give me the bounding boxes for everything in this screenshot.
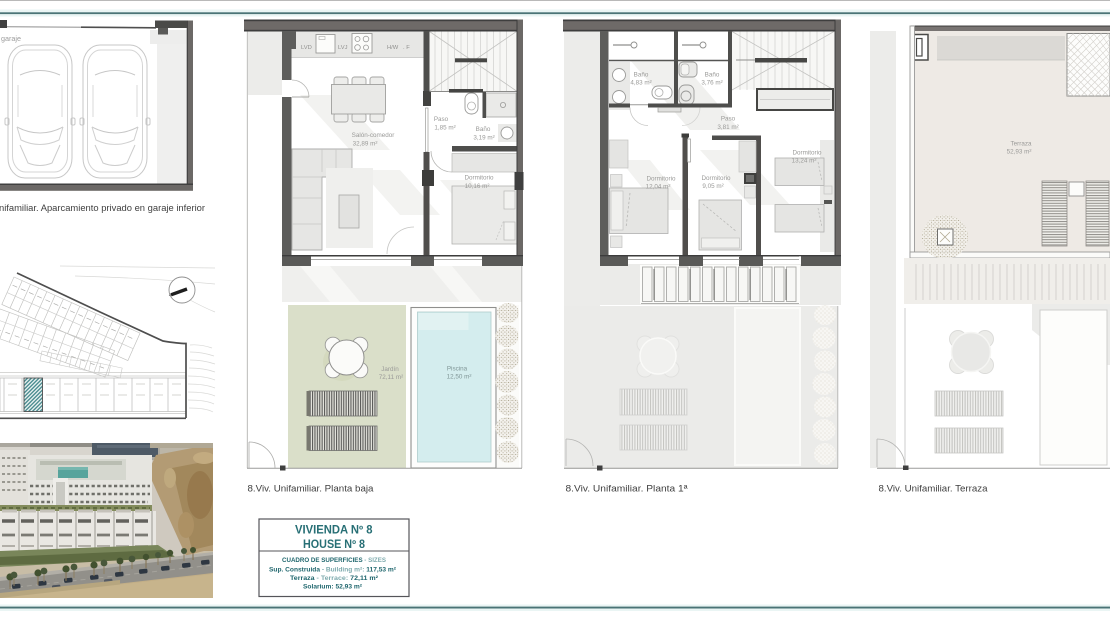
svg-text:3,19 m²: 3,19 m² bbox=[473, 135, 494, 142]
svg-text:Paso: Paso bbox=[434, 116, 449, 123]
svg-text:Dormitorio: Dormitorio bbox=[646, 176, 676, 183]
svg-text:LVD: LVD bbox=[301, 45, 312, 51]
svg-text:3,76 m²: 3,76 m² bbox=[701, 80, 722, 87]
svg-text:9,05 m²: 9,05 m² bbox=[702, 183, 723, 190]
svg-text:8.Viv. Unifamiliar. Planta 1ª: 8.Viv. Unifamiliar. Planta 1ª bbox=[566, 484, 688, 495]
svg-text:VIVIENDA Nº 8: VIVIENDA Nº 8 bbox=[295, 525, 373, 537]
svg-text:Salón-comedor: Salón-comedor bbox=[352, 132, 395, 139]
svg-text:CUADRO DE SUPERFICIES - SIZES: CUADRO DE SUPERFICIES - SIZES bbox=[282, 557, 387, 564]
svg-text:10,16 m²: 10,16 m² bbox=[465, 183, 490, 190]
svg-text:Piscina: Piscina bbox=[447, 366, 468, 373]
svg-text:8.Viv. Unifamiliar. Planta baj: 8.Viv. Unifamiliar. Planta baja bbox=[248, 484, 375, 495]
svg-text:52,93 m²: 52,93 m² bbox=[1007, 149, 1032, 156]
svg-text:garaje: garaje bbox=[1, 34, 21, 43]
svg-text:. F: . F bbox=[403, 45, 410, 51]
svg-text:LVJ: LVJ bbox=[338, 45, 348, 51]
svg-text:Paso: Paso bbox=[721, 116, 736, 123]
svg-text:Terraza - Terrace: 72,11 m²: Terraza - Terrace: 72,11 m² bbox=[290, 575, 379, 582]
svg-text:Solarium: 52,93 m²: Solarium: 52,93 m² bbox=[303, 584, 363, 591]
svg-text:12,04 m²: 12,04 m² bbox=[646, 184, 671, 191]
svg-text:Jardín: Jardín bbox=[381, 366, 399, 373]
svg-text:72,11 m²: 72,11 m² bbox=[379, 374, 403, 381]
svg-text:HOUSE Nº 8: HOUSE Nº 8 bbox=[303, 539, 366, 551]
svg-text:Dormitorio: Dormitorio bbox=[464, 175, 494, 182]
svg-text:12,50 m²: 12,50 m² bbox=[447, 374, 472, 381]
svg-text:8.Viv. Unifamiliar. Aparcamien: 8.Viv. Unifamiliar. Aparcamiento privado… bbox=[0, 203, 206, 214]
svg-text:4,83 m²: 4,83 m² bbox=[630, 80, 651, 87]
svg-text:Baño: Baño bbox=[476, 126, 491, 133]
svg-text:3,81 m²: 3,81 m² bbox=[717, 124, 738, 131]
svg-text:Dormitorio: Dormitorio bbox=[701, 175, 731, 182]
svg-text:Dormitorio: Dormitorio bbox=[792, 150, 822, 157]
svg-text:1,85 m²: 1,85 m² bbox=[434, 125, 455, 132]
svg-text:Sup. Construida - Building m²:: Sup. Construida - Building m²: 117,53 m² bbox=[269, 567, 397, 574]
svg-text:Baño: Baño bbox=[634, 72, 649, 79]
svg-text:13,24 m²: 13,24 m² bbox=[792, 158, 817, 165]
svg-text:Terraza: Terraza bbox=[1011, 141, 1032, 148]
svg-text:32,89 m²: 32,89 m² bbox=[353, 141, 378, 148]
svg-text:Baño: Baño bbox=[705, 72, 720, 79]
svg-text:H/W: H/W bbox=[387, 45, 399, 51]
svg-text:8.Viv. Unifamiliar. Terraza: 8.Viv. Unifamiliar. Terraza bbox=[879, 484, 989, 495]
